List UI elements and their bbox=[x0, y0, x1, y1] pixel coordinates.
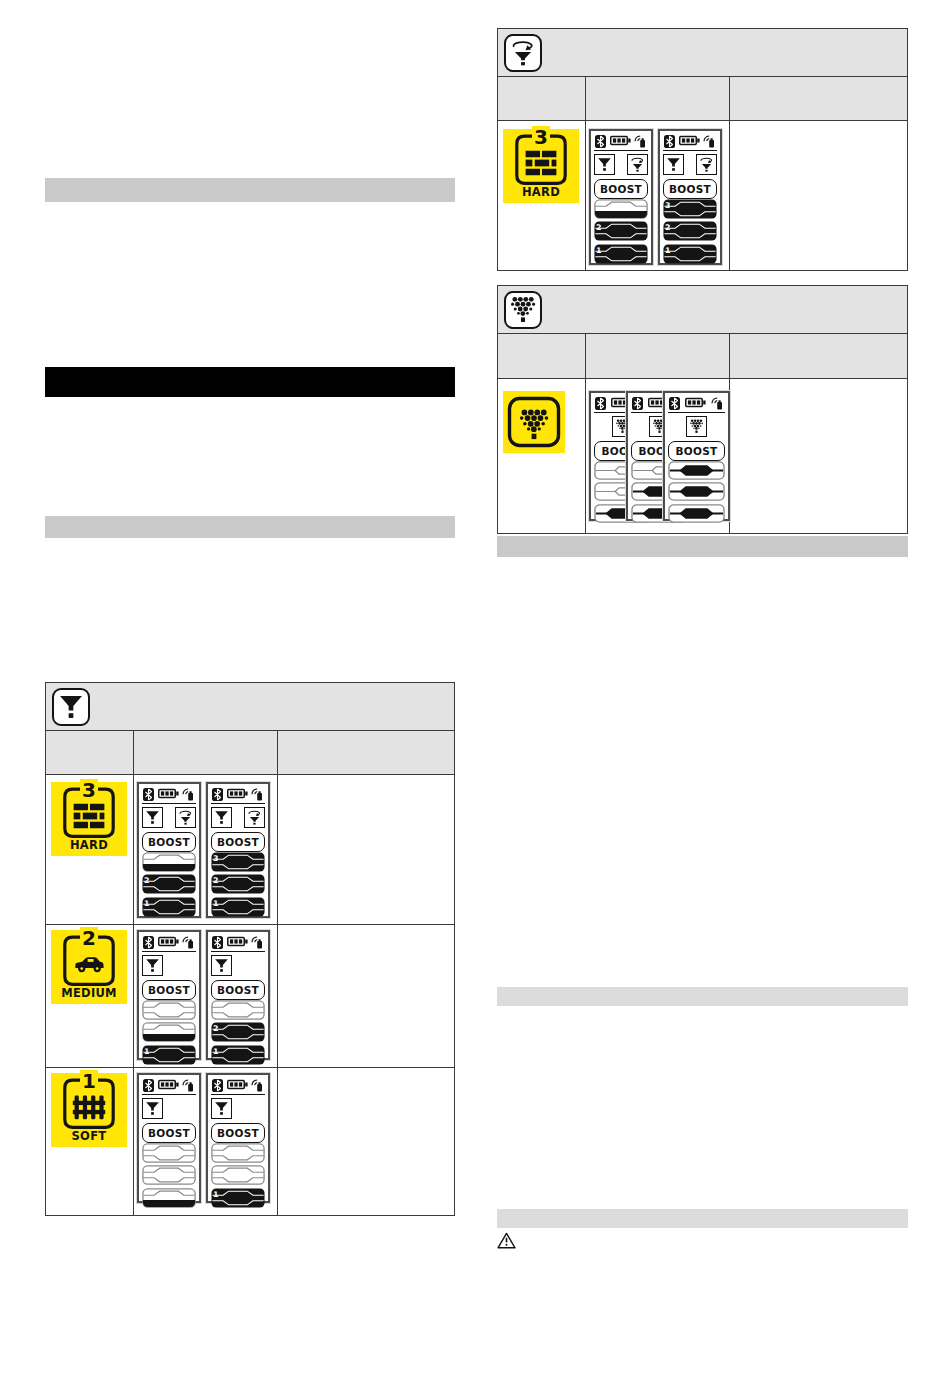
mode-indicator-box bbox=[594, 154, 615, 175]
section-heading-bar-black bbox=[45, 367, 455, 397]
lcd-mode-row bbox=[211, 955, 265, 976]
bottle-gauge-full: 3 bbox=[663, 199, 717, 219]
column-header-cell bbox=[730, 77, 907, 120]
battery-icon bbox=[679, 135, 700, 146]
battery-icon bbox=[158, 788, 179, 799]
mode-indicator-box bbox=[244, 807, 265, 828]
boost-indicator: BOOST bbox=[211, 1123, 265, 1143]
bottle-gauges: 321 bbox=[211, 852, 265, 918]
bluetooth-icon bbox=[212, 936, 223, 949]
bluetooth-icon bbox=[595, 397, 606, 410]
lcd-mode-row bbox=[142, 955, 196, 976]
funnel-rotate-icon bbox=[510, 40, 536, 66]
badge-soft: 1 SOFT bbox=[51, 1073, 127, 1147]
badge-label: SOFT bbox=[72, 1131, 107, 1143]
mode-indicator-box bbox=[211, 955, 232, 976]
mode-indicator-box bbox=[211, 807, 232, 828]
grapes-mode-table: BOOST BOOST BOOST bbox=[497, 285, 908, 534]
remote-signal-icon bbox=[251, 1079, 264, 1092]
bottle-gauges: 1 bbox=[142, 1000, 196, 1066]
lcd-status-bar bbox=[142, 788, 196, 804]
lcd-mode-row bbox=[594, 154, 648, 175]
bottle-gauge-blob bbox=[668, 482, 725, 501]
bottle-gauges: 21 bbox=[594, 199, 648, 265]
funnel-icon bbox=[145, 1101, 160, 1116]
badge-label: HARD bbox=[522, 187, 560, 199]
boost-indicator: BOOST bbox=[142, 1123, 196, 1143]
remote-signal-icon bbox=[703, 135, 716, 148]
battery-icon bbox=[227, 1079, 248, 1090]
grapes-funnel-icon bbox=[689, 419, 704, 434]
funnel-mode-table: 3 HARD BOOST 21 BOOST 321 2 MEDIUM BOOST… bbox=[45, 682, 455, 1216]
bottle-number: 1 bbox=[213, 898, 219, 907]
lcd-status-bar bbox=[211, 788, 265, 804]
funnel-rotate-icon bbox=[630, 157, 645, 172]
battery-icon bbox=[227, 936, 248, 947]
bottle-gauge-empty bbox=[142, 1143, 196, 1163]
bottle-number: 2 bbox=[213, 876, 219, 885]
funnel-rotate-icon bbox=[699, 157, 714, 172]
badge-hard: 3 HARD bbox=[503, 129, 579, 203]
lcd-pair: BOOST 21 BOOST 321 bbox=[589, 129, 729, 265]
bottle-gauge-empty bbox=[142, 1165, 196, 1185]
badge-medium: 2 MEDIUM bbox=[51, 930, 127, 1004]
boost-indicator: BOOST bbox=[142, 832, 196, 852]
screens-cell: BOOST 1 BOOST 21 bbox=[134, 925, 278, 1067]
badge-cell: 1 SOFT bbox=[46, 1068, 134, 1215]
funnel-rotate-icon bbox=[247, 810, 262, 825]
boost-indicator: BOOST bbox=[211, 832, 265, 852]
bluetooth-icon bbox=[212, 1079, 223, 1092]
screens-cell: BOOST BOOST BOOST bbox=[586, 379, 730, 533]
bottle-number: 2 bbox=[144, 876, 150, 885]
bottle-gauge-blob bbox=[668, 504, 725, 523]
remote-signal-icon bbox=[251, 936, 264, 949]
badge-number: 3 bbox=[532, 126, 550, 148]
redacted-text-bar bbox=[45, 516, 455, 538]
bottle-gauge-full: 1 bbox=[211, 1045, 265, 1065]
lcd-status-bar bbox=[142, 1079, 196, 1095]
funnel-icon bbox=[214, 810, 229, 825]
funnel-icon bbox=[145, 810, 160, 825]
bottle-gauge-full: 2 bbox=[663, 221, 717, 241]
mode-indicator-box bbox=[142, 807, 163, 828]
bottle-gauges bbox=[142, 1143, 196, 1209]
lcd-status-bar bbox=[142, 936, 196, 952]
bottle-gauge-blob bbox=[668, 461, 725, 480]
bottle-gauge-full: 1 bbox=[211, 1188, 265, 1208]
lcd-mode-row bbox=[211, 807, 265, 828]
lcd-mode-row bbox=[668, 416, 725, 437]
bottle-gauges: 21 bbox=[211, 1000, 265, 1066]
mode-indicator-box bbox=[686, 416, 707, 437]
bricks-icon bbox=[525, 150, 558, 175]
mode-indicator-box bbox=[211, 1098, 232, 1119]
bottle-gauge-full: 1 bbox=[594, 244, 648, 264]
funnel-rotate-header-iconbox bbox=[504, 34, 542, 72]
remote-signal-icon bbox=[634, 135, 647, 148]
manual-page: { "palette": { "yellow": "#ffe606", "ink… bbox=[0, 0, 950, 1373]
bottle-gauge-full: 2 bbox=[594, 221, 648, 241]
column-header-cell bbox=[586, 77, 730, 120]
warning-icon bbox=[497, 1232, 516, 1249]
table-row: 2 MEDIUM BOOST 1 BOOST 21 bbox=[46, 925, 454, 1068]
bottle-gauge-full: 1 bbox=[142, 897, 196, 917]
description-cell bbox=[278, 775, 454, 924]
battery-icon bbox=[158, 1079, 179, 1090]
battery-icon bbox=[685, 397, 706, 408]
battery-icon bbox=[227, 788, 248, 799]
badge-frame: 3 bbox=[61, 786, 117, 840]
bottle-gauges: 1 bbox=[211, 1143, 265, 1209]
mode-indicator-box bbox=[142, 1098, 163, 1119]
badge-frame: 1 bbox=[61, 1077, 117, 1131]
bluetooth-icon bbox=[143, 788, 154, 801]
bottle-gauge-empty bbox=[211, 1000, 265, 1020]
lcd-display: BOOST bbox=[663, 391, 730, 521]
lcd-display: BOOST 1 bbox=[137, 930, 201, 1060]
screens-cell: BOOST 21 BOOST 321 bbox=[586, 121, 730, 270]
bottle-gauge-full: 1 bbox=[142, 1045, 196, 1065]
lcd-mode-row bbox=[211, 1098, 265, 1119]
column-header-cell bbox=[46, 731, 134, 774]
bottle-gauge-full: 2 bbox=[142, 874, 196, 894]
bottle-number: 2 bbox=[665, 223, 671, 232]
lcd-status-bar bbox=[594, 135, 648, 151]
screens-cell: BOOST BOOST 1 bbox=[134, 1068, 278, 1215]
badge-cell: 3 HARD bbox=[498, 121, 586, 270]
mode-indicator-box bbox=[175, 807, 196, 828]
fence-icon bbox=[73, 1094, 106, 1119]
lcd-pair: BOOST 21 BOOST 321 bbox=[137, 782, 277, 918]
bottle-number: 3 bbox=[665, 200, 671, 209]
battery-icon bbox=[610, 135, 631, 146]
funnel-rotate-mode-table: 3 HARD BOOST 21 BOOST 321 bbox=[497, 28, 908, 271]
bluetooth-icon bbox=[143, 1079, 154, 1092]
bottle-gauge-empty bbox=[211, 1143, 265, 1163]
lcd-display: BOOST 1 bbox=[206, 1073, 270, 1203]
funnel-icon bbox=[145, 958, 160, 973]
funnel-icon bbox=[214, 958, 229, 973]
badge-label: MEDIUM bbox=[61, 988, 117, 1000]
column-header-row bbox=[498, 334, 907, 379]
bottle-number: 1 bbox=[213, 1046, 219, 1055]
lcd-display: BOOST 21 bbox=[137, 782, 201, 918]
car-icon bbox=[73, 954, 106, 974]
column-header-row bbox=[498, 77, 907, 121]
lcd-status-bar bbox=[663, 135, 717, 151]
column-header-row bbox=[46, 731, 454, 775]
bottle-number: 1 bbox=[144, 1046, 150, 1055]
grapes-icon bbox=[518, 408, 551, 441]
redacted-text-bar bbox=[497, 987, 908, 1006]
description-cell bbox=[730, 379, 907, 533]
warning-triangle-icon bbox=[497, 1232, 516, 1249]
bottle-gauge-full: 2 bbox=[211, 1022, 265, 1042]
bottle-gauges bbox=[668, 461, 725, 524]
bottle-number: 2 bbox=[596, 223, 602, 232]
boost-indicator: BOOST bbox=[668, 441, 725, 461]
grapes-funnel-icon bbox=[509, 296, 537, 324]
bottle-number: 1 bbox=[213, 1189, 219, 1198]
badge-frame: 2 bbox=[61, 934, 117, 988]
lcd-display: BOOST bbox=[137, 1073, 201, 1203]
bottle-gauges: 321 bbox=[663, 199, 717, 265]
table-row: 3 HARD BOOST 21 BOOST 321 bbox=[46, 775, 454, 925]
lcd-display: BOOST 321 bbox=[658, 129, 722, 265]
fence-icon bbox=[73, 1094, 106, 1119]
column-header-cell bbox=[498, 77, 586, 120]
bottle-gauge-empty bbox=[142, 1000, 196, 1020]
table-row: 1 SOFT BOOST BOOST 1 bbox=[46, 1068, 454, 1215]
bottle-number: 1 bbox=[665, 245, 671, 254]
redacted-text-bar bbox=[497, 1209, 908, 1228]
bluetooth-icon bbox=[212, 788, 223, 801]
badge-cell: 3 HARD bbox=[46, 775, 134, 924]
badge-number: 2 bbox=[80, 927, 98, 949]
bottle-number: 1 bbox=[596, 245, 602, 254]
lcd-sequence: BOOST BOOST BOOST bbox=[589, 391, 730, 521]
mode-indicator-box bbox=[663, 154, 684, 175]
badge-cell: 2 MEDIUM bbox=[46, 925, 134, 1067]
column-header-cell bbox=[730, 334, 907, 378]
table-header bbox=[498, 29, 907, 77]
badge-label: HARD bbox=[70, 840, 108, 852]
bricks-icon bbox=[525, 150, 558, 175]
funnel-icon bbox=[58, 694, 84, 720]
boost-indicator: BOOST bbox=[142, 980, 196, 1000]
lcd-mode-row bbox=[663, 154, 717, 175]
bluetooth-icon bbox=[595, 135, 606, 148]
remote-signal-icon bbox=[251, 788, 264, 801]
bottle-gauge-half bbox=[142, 852, 196, 872]
lcd-display: BOOST 21 bbox=[206, 930, 270, 1060]
boost-indicator: BOOST bbox=[663, 179, 717, 199]
column-header-cell bbox=[498, 334, 586, 378]
bottle-gauge-half bbox=[142, 1022, 196, 1042]
bottle-gauge-full: 1 bbox=[211, 897, 265, 917]
lcd-status-bar bbox=[211, 936, 265, 952]
column-header-cell bbox=[278, 731, 454, 774]
bluetooth-icon bbox=[664, 135, 675, 148]
badge-grapes bbox=[503, 391, 565, 453]
funnel-icon bbox=[666, 157, 681, 172]
description-cell bbox=[278, 1068, 454, 1215]
badge-cell bbox=[498, 379, 586, 533]
funnel-icon bbox=[214, 1101, 229, 1116]
mode-indicator-box bbox=[142, 955, 163, 976]
lcd-mode-row bbox=[142, 807, 196, 828]
description-cell bbox=[278, 925, 454, 1067]
description-cell bbox=[730, 121, 907, 270]
redacted-text-bar bbox=[497, 536, 908, 557]
column-header-cell bbox=[134, 731, 278, 774]
bricks-icon bbox=[73, 803, 106, 828]
grapes-header-iconbox bbox=[504, 291, 542, 329]
screens-cell: BOOST 21 BOOST 321 bbox=[134, 775, 278, 924]
table-header bbox=[498, 286, 907, 334]
table-row: 3 HARD BOOST 21 BOOST 321 bbox=[498, 121, 907, 270]
lcd-pair: BOOST 1 BOOST 21 bbox=[137, 930, 277, 1060]
bottle-gauge-half bbox=[594, 199, 648, 219]
bluetooth-icon bbox=[632, 397, 643, 410]
column-header-cell bbox=[586, 334, 730, 378]
grapes-funnel-icon bbox=[518, 408, 551, 441]
lcd-display: BOOST 321 bbox=[206, 782, 270, 918]
table-header bbox=[46, 683, 454, 731]
bottle-gauge-full: 1 bbox=[663, 244, 717, 264]
redacted-text-bar bbox=[45, 178, 455, 202]
funnel-header-iconbox bbox=[52, 688, 90, 726]
bottle-gauge-empty bbox=[211, 1165, 265, 1185]
funnel-rotate-icon bbox=[178, 810, 193, 825]
lcd-status-bar bbox=[668, 397, 725, 413]
lcd-mode-row bbox=[142, 1098, 196, 1119]
bluetooth-icon bbox=[669, 397, 680, 410]
badge-frame bbox=[506, 395, 562, 449]
lcd-status-bar bbox=[211, 1079, 265, 1095]
badge-frame: 3 bbox=[513, 133, 569, 187]
car-icon bbox=[73, 954, 106, 974]
table-row: BOOST BOOST BOOST bbox=[498, 379, 907, 533]
remote-signal-icon bbox=[182, 1079, 195, 1092]
remote-signal-icon bbox=[711, 397, 724, 410]
bottle-gauge-full: 2 bbox=[211, 874, 265, 894]
bottle-gauges: 21 bbox=[142, 852, 196, 918]
lcd-display: BOOST 21 bbox=[589, 129, 653, 265]
bluetooth-icon bbox=[143, 936, 154, 949]
bottle-number: 2 bbox=[213, 1024, 219, 1033]
badge-number: 1 bbox=[80, 1070, 98, 1092]
boost-indicator: BOOST bbox=[211, 980, 265, 1000]
battery-icon bbox=[158, 936, 179, 947]
mode-indicator-box bbox=[627, 154, 648, 175]
bottle-gauge-half bbox=[142, 1188, 196, 1208]
remote-signal-icon bbox=[182, 788, 195, 801]
boost-indicator: BOOST bbox=[594, 179, 648, 199]
mode-indicator-box bbox=[696, 154, 717, 175]
bottle-number: 1 bbox=[144, 898, 150, 907]
bottle-gauge-full: 3 bbox=[211, 852, 265, 872]
remote-signal-icon bbox=[182, 936, 195, 949]
bottle-number: 3 bbox=[213, 853, 219, 862]
badge-hard: 3 HARD bbox=[51, 782, 127, 856]
bricks-icon bbox=[73, 803, 106, 828]
lcd-pair: BOOST BOOST 1 bbox=[137, 1073, 277, 1203]
funnel-icon bbox=[597, 157, 612, 172]
badge-number: 3 bbox=[80, 779, 98, 801]
